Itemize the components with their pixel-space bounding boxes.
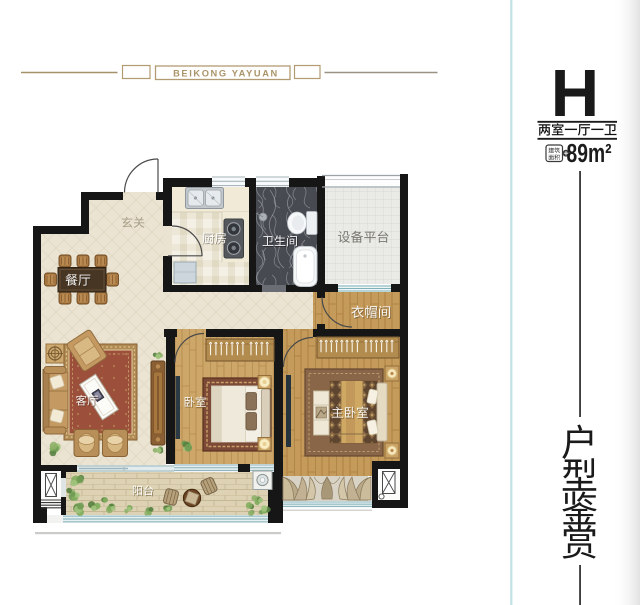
svg-text:H: H (551, 56, 599, 131)
svg-text:89m²: 89m² (567, 140, 612, 168)
svg-text:BEIKONG YAYUAN: BEIKONG YAYUAN (173, 68, 279, 78)
